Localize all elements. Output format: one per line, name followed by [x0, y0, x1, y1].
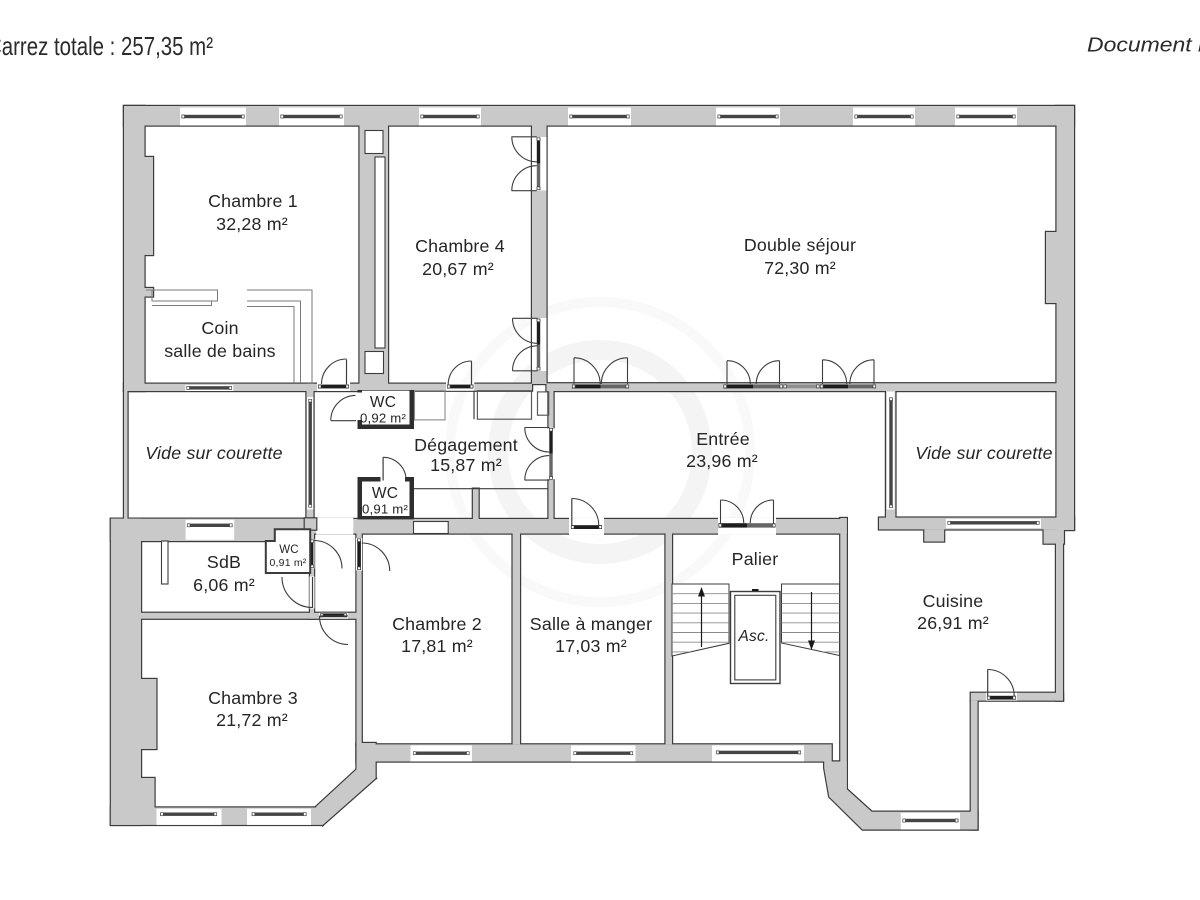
svg-text:21,72 m²: 21,72 m²	[216, 710, 288, 730]
svg-text:Salle à manger: Salle à manger	[530, 614, 652, 634]
svg-text:WC: WC	[370, 394, 396, 411]
svg-text:0,91 m²: 0,91 m²	[270, 557, 307, 569]
svg-text:20,67 m²: 20,67 m²	[422, 259, 494, 279]
svg-text:Entrée: Entrée	[696, 429, 750, 449]
svg-text:17,81 m²: 17,81 m²	[401, 636, 473, 656]
svg-text:0,91 m²: 0,91 m²	[362, 502, 409, 517]
svg-text:Cuisine: Cuisine	[923, 591, 984, 611]
svg-text:WC: WC	[372, 485, 398, 502]
svg-text:Carrez totale : 257,35 m²: Carrez totale : 257,35 m²	[0, 31, 213, 61]
svg-text:Asc.: Asc.	[738, 628, 770, 645]
svg-text:Vide sur courette: Vide sur courette	[145, 443, 283, 463]
svg-text:23,96 m²: 23,96 m²	[686, 451, 758, 471]
svg-text:15,87 m²: 15,87 m²	[430, 455, 502, 475]
svg-text:Double séjour: Double séjour	[744, 235, 856, 255]
svg-text:Dégagement: Dégagement	[414, 435, 518, 455]
svg-text:Coin: Coin	[201, 318, 238, 338]
svg-text:Chambre 1: Chambre 1	[208, 191, 298, 211]
svg-text:Chambre 4: Chambre 4	[415, 236, 505, 256]
svg-text:26,91 m²: 26,91 m²	[917, 613, 989, 633]
svg-text:32,28 m²: 32,28 m²	[216, 214, 288, 234]
svg-text:17,03 m²: 17,03 m²	[555, 636, 627, 656]
svg-text:Vide sur courette: Vide sur courette	[915, 443, 1053, 463]
svg-text:WC: WC	[279, 544, 299, 556]
svg-text:Chambre 2: Chambre 2	[392, 614, 482, 634]
svg-text:salle de bains: salle de bains	[164, 341, 276, 361]
svg-text:Document non contractuel: Document non contractuel	[1087, 35, 1200, 57]
svg-text:SdB: SdB	[207, 552, 241, 572]
svg-text:72,30 m²: 72,30 m²	[764, 258, 836, 278]
svg-text:Chambre 3: Chambre 3	[208, 688, 298, 708]
svg-text:0,92 m²: 0,92 m²	[360, 411, 407, 426]
svg-text:6,06 m²: 6,06 m²	[193, 575, 255, 595]
svg-text:Palier: Palier	[732, 549, 779, 569]
